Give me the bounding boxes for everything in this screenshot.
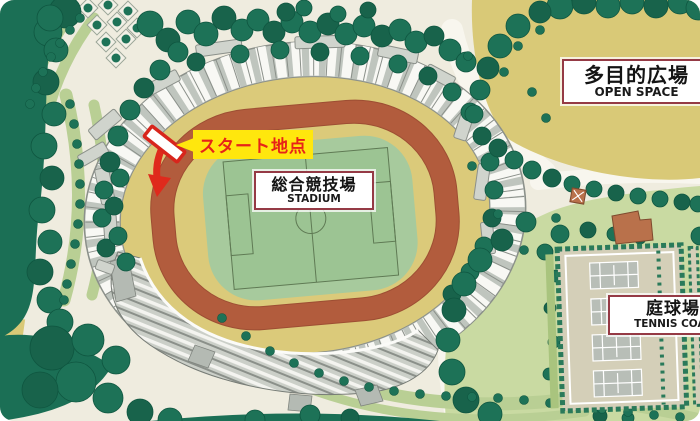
stadium-label-en: STADIUM (262, 194, 366, 206)
stadium-label-ja: 総合競技場 (262, 176, 366, 194)
open-space-label-en: OPEN SPACE (570, 86, 700, 99)
tennis-court-label: 庭球場 TENNIS COAT (608, 295, 700, 335)
stadium-park-map: 多目的広場 OPEN SPACE 総合競技場 STADIUM 庭球場 TENNI… (0, 0, 700, 421)
start-point-callout: スタート地点 (193, 130, 313, 159)
open-space-label-ja: 多目的広場 (570, 64, 700, 86)
tennis-court-label-ja: 庭球場 (616, 300, 700, 319)
kiosk (570, 188, 586, 204)
stadium-field (223, 148, 399, 290)
tennis-court-label-en: TENNIS COAT (616, 319, 700, 331)
start-point-callout-text: スタート地点 (199, 132, 307, 157)
open-space-label: 多目的広場 OPEN SPACE (562, 59, 700, 104)
stadium-label: 総合競技場 STADIUM (254, 171, 374, 210)
